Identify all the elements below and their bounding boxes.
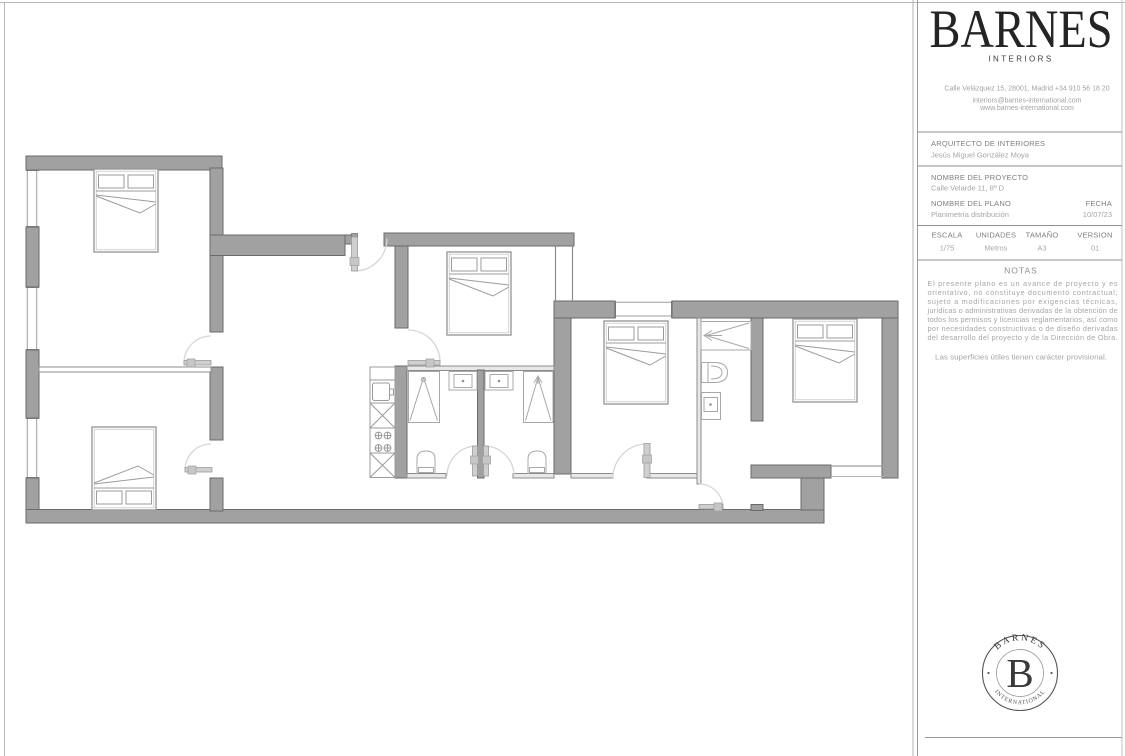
svg-text:El presente plano es un avance: El presente plano es un avance de proyec… xyxy=(928,279,1118,288)
svg-text:Planimetría distribución: Planimetría distribución xyxy=(931,210,1009,219)
svg-text:VERSION: VERSION xyxy=(1077,231,1112,240)
svg-text:del desarrollo del proyecto y: del desarrollo del proyecto y de la Dire… xyxy=(928,333,1118,342)
svg-text:NOMBRE DEL PROYECTO: NOMBRE DEL PROYECTO xyxy=(931,173,1028,182)
svg-text:NOTAS: NOTAS xyxy=(1004,266,1038,276)
svg-text:A3: A3 xyxy=(1037,244,1046,253)
svg-text:ESCALA: ESCALA xyxy=(932,231,963,240)
svg-text:www.barnes-international.com: www.barnes-international.com xyxy=(979,105,1074,112)
svg-text:UNIDADES: UNIDADES xyxy=(976,231,1016,240)
svg-text:01: 01 xyxy=(1091,244,1099,253)
svg-text:orientativo, no constituye doc: orientativo, no constituye documento con… xyxy=(928,288,1118,297)
svg-text:ARQUITECTO DE INTERIORES: ARQUITECTO DE INTERIORES xyxy=(931,139,1045,148)
svg-text:NOMBRE DEL PLANO: NOMBRE DEL PLANO xyxy=(931,199,1011,208)
svg-text:todos los permisos y licencias: todos los permisos y licencias reglament… xyxy=(928,315,1118,324)
svg-text:sujeto a modificaciones por ex: sujeto a modificaciones por exigencias t… xyxy=(928,297,1118,306)
svg-text:jurídicas o administrativas de: jurídicas o administrativas derivadas de… xyxy=(927,306,1118,315)
svg-text:por necesidades constructivas: por necesidades constructivas o de diseñ… xyxy=(928,324,1118,333)
svg-text:Jesús Miguel González Moya: Jesús Miguel González Moya xyxy=(931,151,1030,160)
svg-text:FECHA: FECHA xyxy=(1086,199,1112,208)
svg-text:TAMAÑO: TAMAÑO xyxy=(1026,231,1059,240)
svg-text:Calle Velarde 11, 8º D: Calle Velarde 11, 8º D xyxy=(931,184,1005,193)
svg-text:Metros: Metros xyxy=(985,244,1008,253)
svg-text:interiors@barnes-international: interiors@barnes-international.com xyxy=(972,98,1081,105)
svg-text:Calle Velázquez 15, 28001, Mad: Calle Velázquez 15, 28001, Madrid +34 91… xyxy=(944,86,1109,93)
svg-text:BARNES: BARNES xyxy=(930,0,1113,59)
svg-text:10/07/23: 10/07/23 xyxy=(1083,210,1112,219)
svg-text:INTERIORS: INTERIORS xyxy=(988,55,1053,64)
svg-text:1/75: 1/75 xyxy=(940,244,955,253)
svg-text:B: B xyxy=(1006,650,1033,696)
svg-text:Las superficies útiles tienen: Las superficies útiles tienen carácter p… xyxy=(935,353,1107,362)
